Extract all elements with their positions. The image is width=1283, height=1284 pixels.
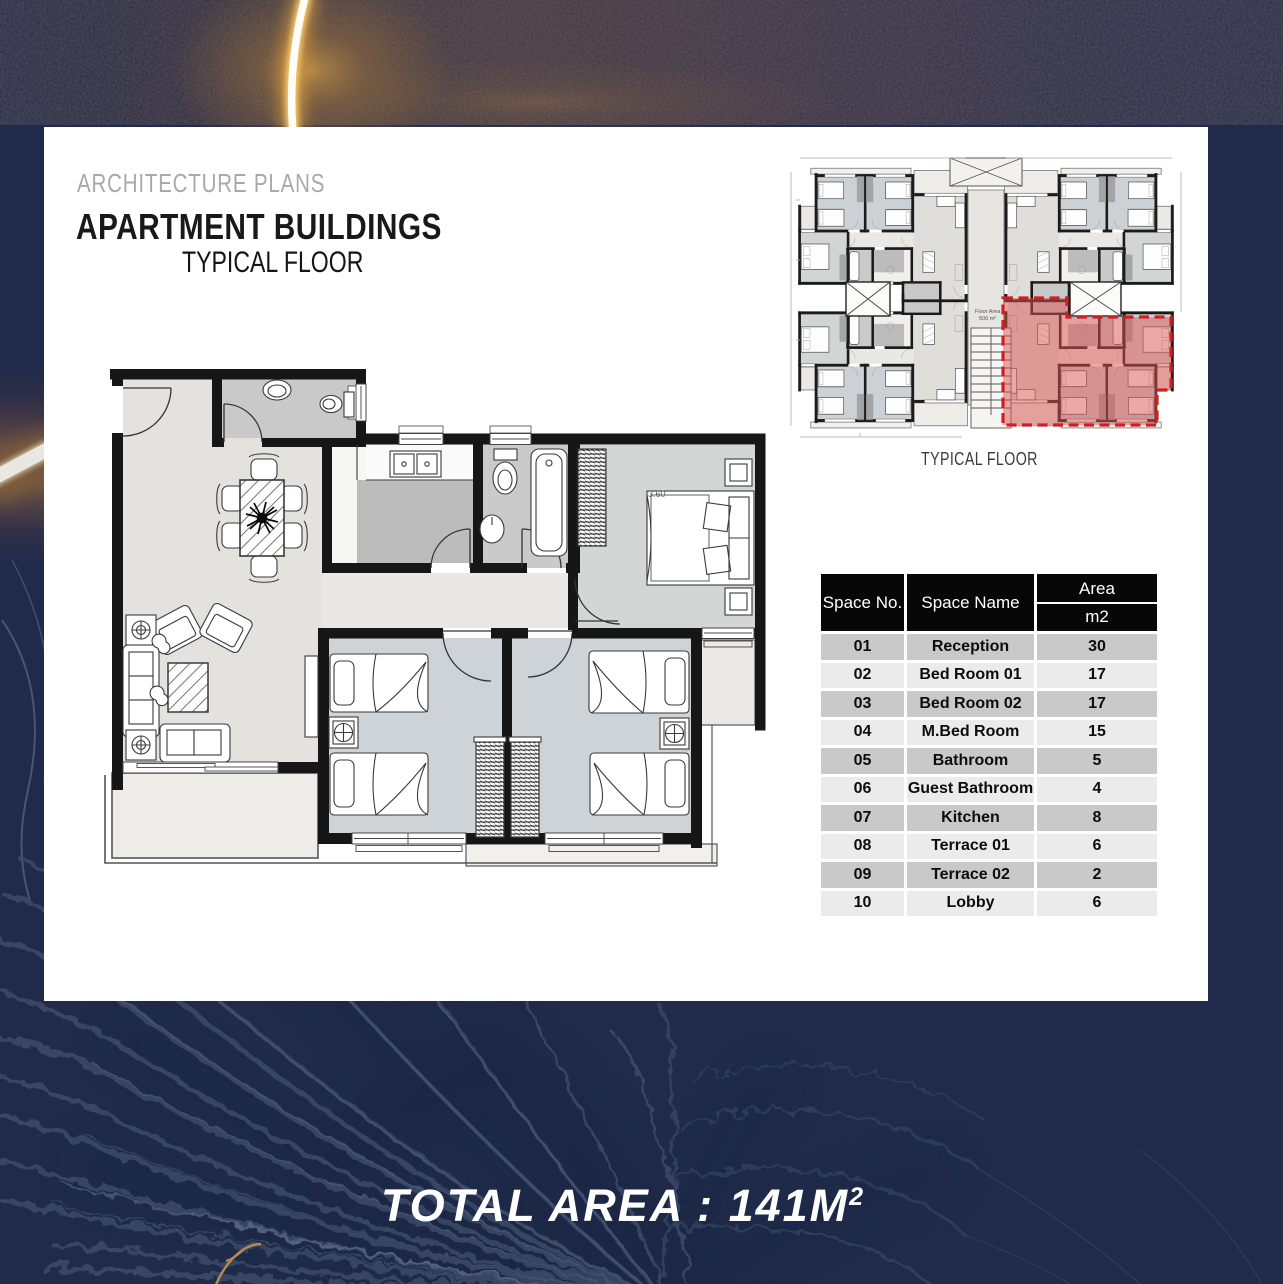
svg-text:3.60: 3.60 bbox=[648, 489, 666, 499]
svg-text:500 m²: 500 m² bbox=[979, 316, 996, 322]
svg-text:Floor Area: Floor Area bbox=[975, 309, 1001, 315]
